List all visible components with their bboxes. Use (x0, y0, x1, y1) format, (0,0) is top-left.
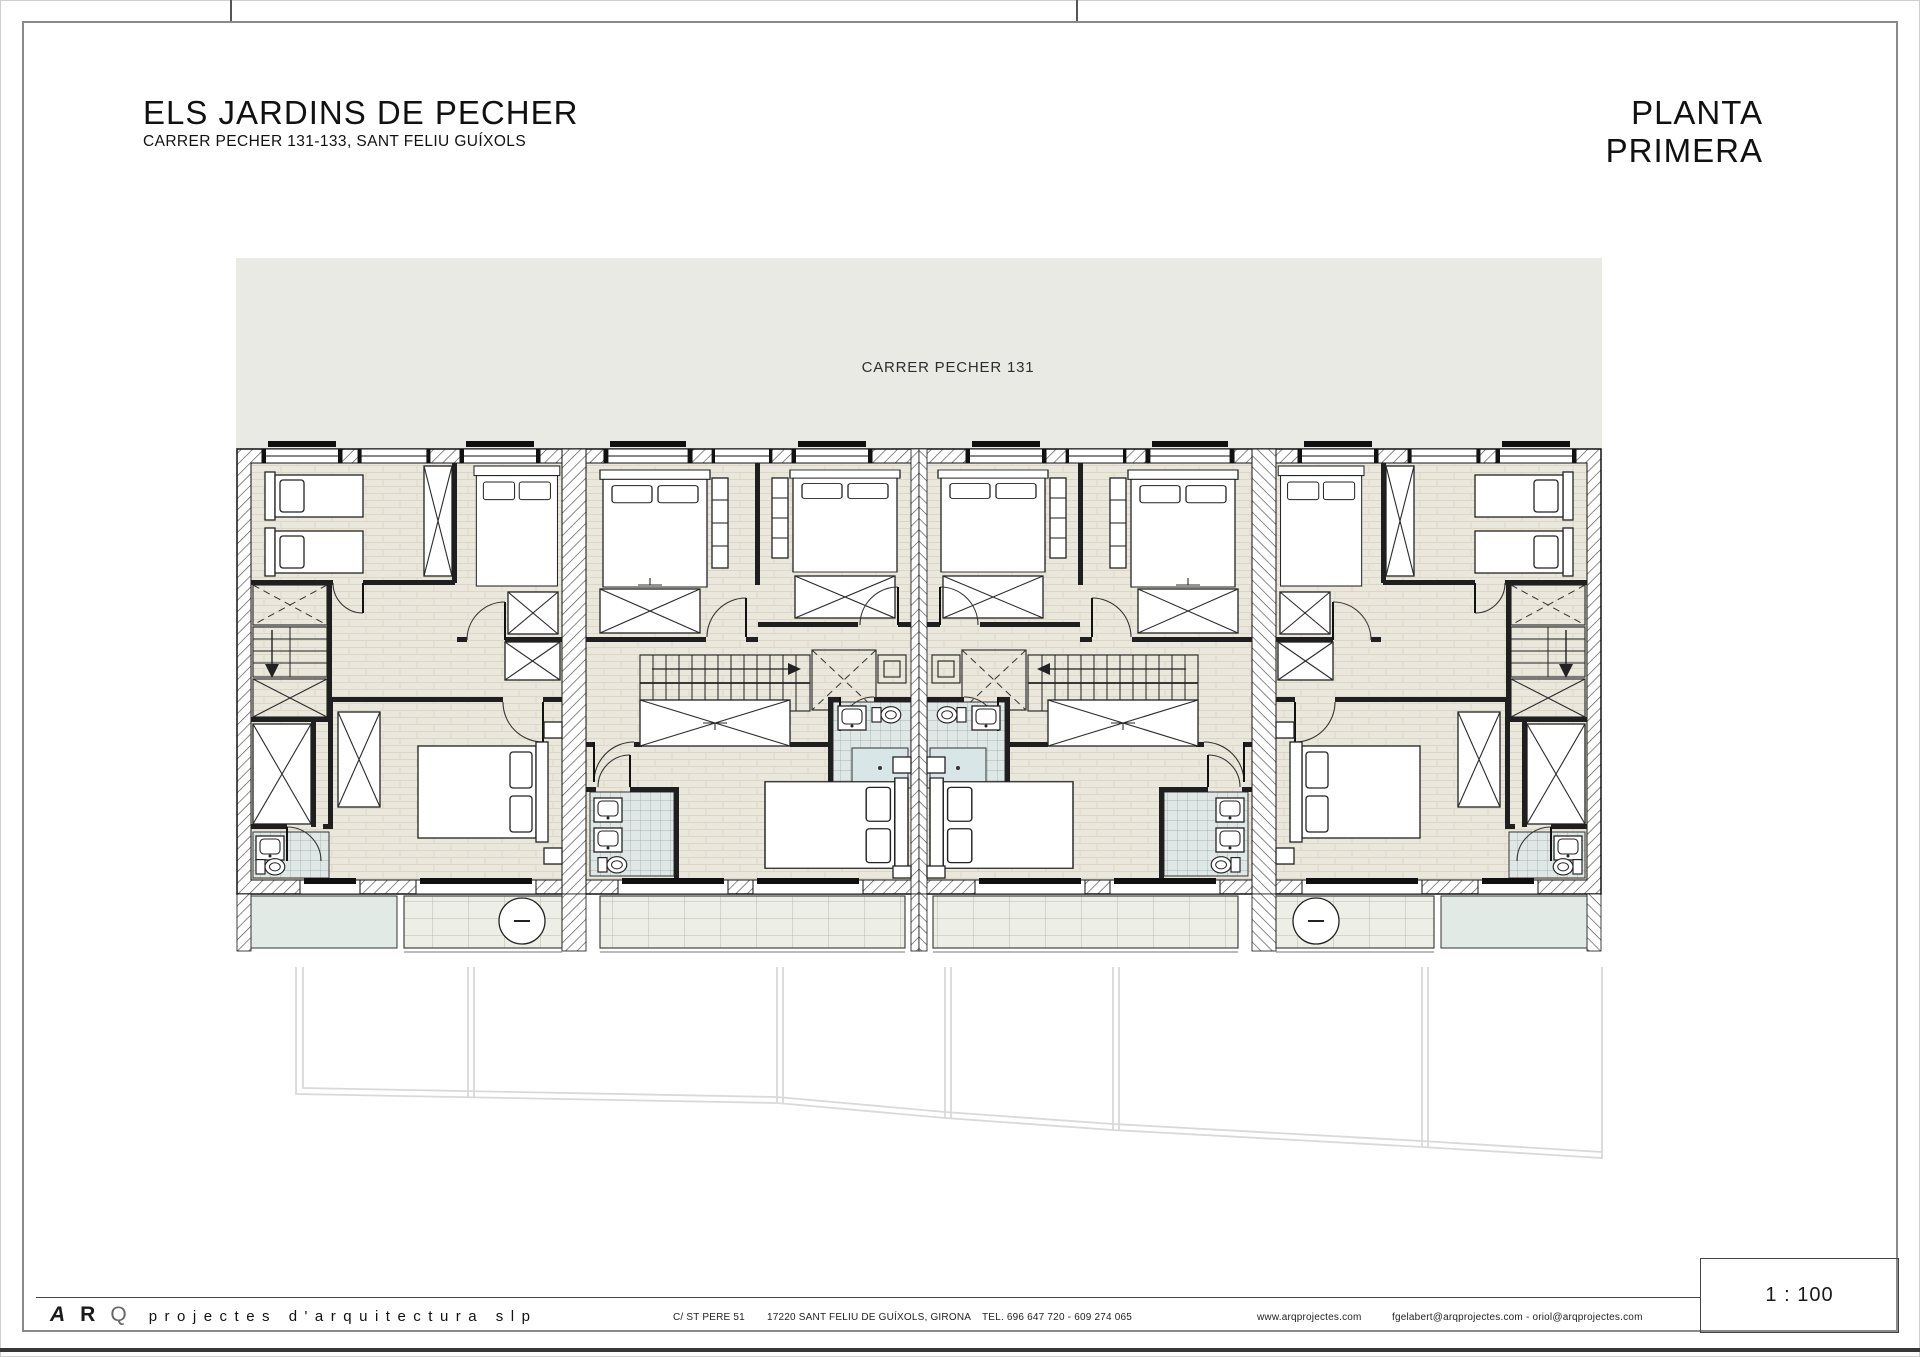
street-band: CARRER PECHER 131 (236, 258, 1602, 449)
scale-box: 1 : 100 (1700, 1258, 1899, 1333)
floor-plan-canvas: CARRER PECHER 131 (0, 0, 1920, 1357)
street-label: CARRER PECHER 131 (862, 359, 1035, 376)
logo-letter-r: R (80, 1303, 95, 1327)
titleblock-divider (36, 1297, 1700, 1298)
firm-website: www.arqprojectes.com (1257, 1312, 1362, 1323)
garden-plots (296, 967, 1602, 1158)
building (237, 441, 1601, 952)
logo-letter-a: A (50, 1303, 65, 1327)
firm-logo: A R Q projectes d'arquitectura slp (50, 1303, 537, 1327)
project-subtitle: CARRER PECHER 131-133, SANT FELIU GUÍXOL… (143, 133, 526, 151)
firm-emails: fgelabert@arqprojectes.com - oriol@arqpr… (1392, 1312, 1643, 1323)
drawing-sheet: { "header": { "title": "ELS JARDINS DE P… (0, 0, 1920, 1357)
drawing-scale: 1 : 100 (1765, 1284, 1833, 1307)
firm-address: C/ ST PERE 51 (673, 1312, 745, 1323)
logo-letter-q: Q (110, 1303, 126, 1327)
firm-phone: TEL. 696 647 720 - 609 274 065 (982, 1312, 1132, 1323)
sheet-title: PLANTA PRIMERA (1473, 94, 1763, 170)
firm-city: 17220 SANT FELIU DE GUÍXOLS, GIRONA (767, 1312, 971, 1323)
firm-name: projectes d'arquitectura slp (149, 1308, 538, 1325)
project-title: ELS JARDINS DE PECHER (143, 94, 578, 132)
